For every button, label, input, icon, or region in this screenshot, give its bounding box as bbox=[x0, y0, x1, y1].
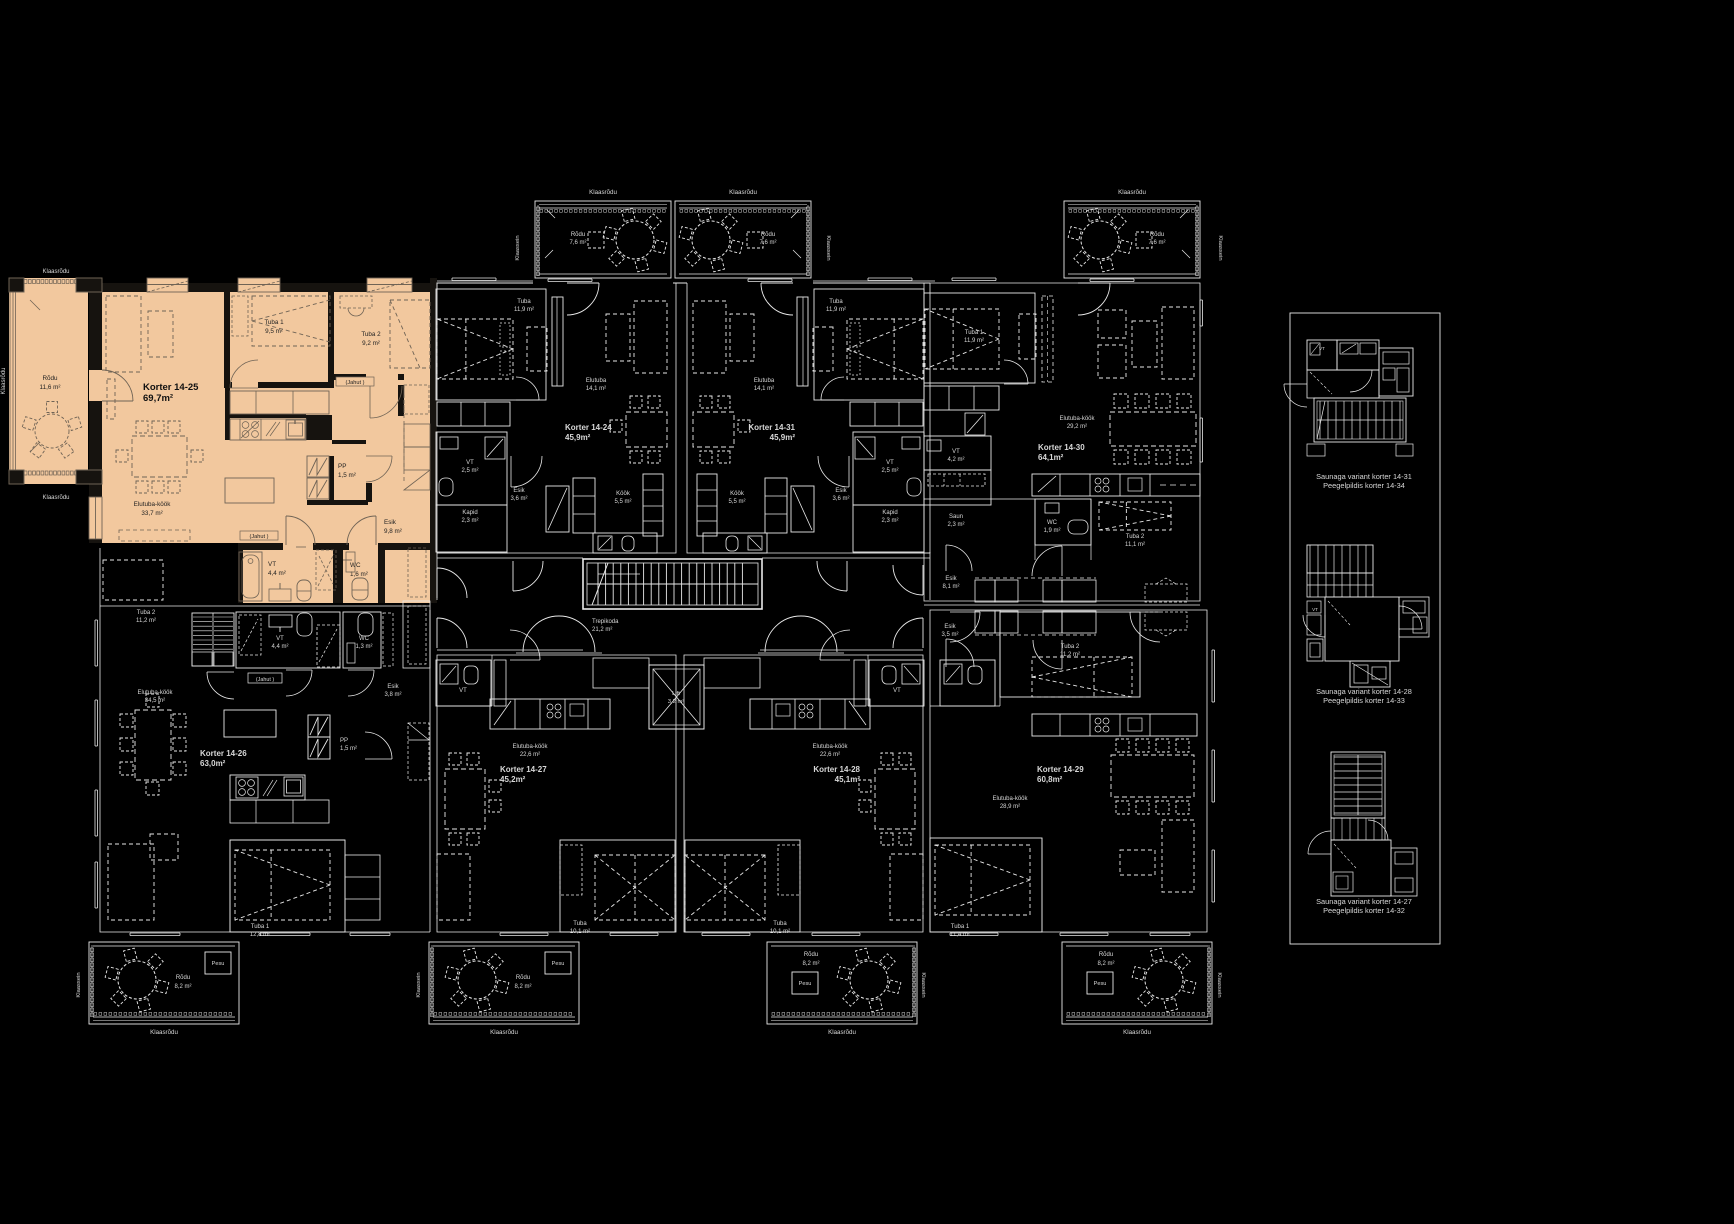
svg-text:21,2 m²: 21,2 m² bbox=[592, 627, 612, 633]
svg-text:Rõdu: Rõdu bbox=[516, 975, 530, 981]
svg-text:Rõdu: Rõdu bbox=[571, 232, 585, 238]
svg-text:Klaassein: Klaassein bbox=[920, 972, 926, 997]
svg-text:Tuba 2: Tuba 2 bbox=[137, 610, 156, 616]
svg-text:(Jahut ): (Jahut ) bbox=[256, 677, 274, 683]
svg-text:Elutuba-köök: Elutuba-köök bbox=[512, 744, 548, 750]
svg-text:4,4 m²: 4,4 m² bbox=[271, 644, 288, 650]
svg-text:VT: VT bbox=[466, 460, 474, 466]
svg-text:11,9 m²: 11,9 m² bbox=[964, 338, 984, 344]
svg-text:45,2m²: 45,2m² bbox=[500, 775, 526, 784]
svg-text:Klaassein: Klaassein bbox=[1216, 972, 1222, 997]
svg-text:1,3 m²: 1,3 m² bbox=[355, 644, 372, 650]
svg-text:Klaasrõdu: Klaasrõdu bbox=[729, 189, 757, 196]
svg-text:8,2 m²: 8,2 m² bbox=[1097, 961, 1114, 967]
svg-text:1,9 m²: 1,9 m² bbox=[1043, 528, 1060, 534]
svg-text:1,5 m²: 1,5 m² bbox=[340, 746, 357, 752]
svg-text:11,2 m²: 11,2 m² bbox=[1060, 652, 1080, 658]
svg-text:Peegelpildis korter 14-34: Peegelpildis korter 14-34 bbox=[1323, 481, 1405, 490]
svg-text:VT: VT bbox=[459, 688, 467, 694]
svg-text:Klaasrõdu: Klaasrõdu bbox=[589, 189, 617, 196]
svg-text:9,2 m²: 9,2 m² bbox=[362, 340, 380, 347]
svg-text:11,9 m²: 11,9 m² bbox=[826, 307, 846, 313]
svg-text:Tuba 1: Tuba 1 bbox=[965, 330, 984, 336]
svg-text:7,6 m²: 7,6 m² bbox=[569, 240, 586, 246]
svg-text:Tuba 1: Tuba 1 bbox=[251, 924, 270, 930]
svg-text:WC: WC bbox=[1047, 520, 1058, 526]
svg-text:Klaasrõdu: Klaasrõdu bbox=[828, 1029, 856, 1036]
svg-text:Korter 14-25: Korter 14-25 bbox=[143, 382, 199, 393]
svg-text:PP: PP bbox=[340, 738, 348, 744]
svg-text:Esik: Esik bbox=[384, 519, 397, 526]
svg-text:Saunaga variant korter 14-28: Saunaga variant korter 14-28 bbox=[1316, 687, 1412, 696]
svg-text:Tuba: Tuba bbox=[573, 921, 587, 927]
svg-text:Kapid: Kapid bbox=[462, 510, 477, 516]
svg-text:34,5 m²: 34,5 m² bbox=[145, 698, 165, 704]
svg-text:Korter 14-31: Korter 14-31 bbox=[748, 423, 795, 432]
svg-text:Rõdu: Rõdu bbox=[42, 375, 58, 382]
svg-text:Elutuba: Elutuba bbox=[586, 378, 607, 384]
svg-text:3,6 m²: 3,6 m² bbox=[832, 496, 849, 502]
svg-text:64,1m²: 64,1m² bbox=[1038, 453, 1064, 462]
svg-text:Kapid: Kapid bbox=[882, 510, 897, 516]
svg-text:WC: WC bbox=[359, 636, 370, 642]
svg-text:Klaassein: Klaassein bbox=[1217, 235, 1223, 260]
svg-text:VT: VT bbox=[893, 688, 901, 694]
svg-text:5,5 m²: 5,5 m² bbox=[728, 499, 745, 505]
svg-text:Pesu: Pesu bbox=[799, 981, 812, 987]
svg-text:28,9 m²: 28,9 m² bbox=[1000, 804, 1020, 810]
svg-text:63,0m²: 63,0m² bbox=[200, 759, 226, 768]
svg-text:Saun: Saun bbox=[949, 514, 963, 520]
svg-text:22,6 m²: 22,6 m² bbox=[820, 752, 840, 758]
svg-text:Korter 14-30: Korter 14-30 bbox=[1038, 443, 1085, 452]
svg-text:11,1 m²: 11,1 m² bbox=[1125, 542, 1145, 548]
svg-text:8,1 m²: 8,1 m² bbox=[942, 584, 959, 590]
svg-text:Tuba 1: Tuba 1 bbox=[951, 924, 970, 930]
svg-text:Saunaga variant korter 14-31: Saunaga variant korter 14-31 bbox=[1316, 472, 1412, 481]
svg-text:Korter 14-26: Korter 14-26 bbox=[200, 749, 247, 758]
svg-text:11,2 m²: 11,2 m² bbox=[136, 618, 156, 624]
svg-text:29,2 m²: 29,2 m² bbox=[1067, 424, 1087, 430]
svg-text:Pesu: Pesu bbox=[212, 961, 225, 967]
svg-text:Tuba 2: Tuba 2 bbox=[361, 331, 381, 338]
svg-text:Rõdu: Rõdu bbox=[1150, 232, 1164, 238]
svg-text:Klaassein: Klaassein bbox=[76, 972, 82, 997]
svg-text:VT: VT bbox=[1312, 607, 1318, 612]
svg-text:WC: WC bbox=[350, 562, 361, 569]
svg-text:8,2 m²: 8,2 m² bbox=[802, 961, 819, 967]
svg-text:3,5 m²: 3,5 m² bbox=[941, 632, 958, 638]
svg-text:45,9m²: 45,9m² bbox=[770, 433, 796, 442]
svg-text:Klaassein: Klaassein bbox=[416, 972, 422, 997]
svg-text:Klaassein: Klaassein bbox=[825, 235, 831, 260]
svg-text:Klaasrõdu: Klaasrõdu bbox=[42, 495, 69, 501]
svg-text:Pesu: Pesu bbox=[1094, 981, 1107, 987]
svg-text:VT: VT bbox=[268, 561, 276, 568]
svg-text:VT: VT bbox=[952, 449, 960, 455]
svg-text:Tuba: Tuba bbox=[517, 299, 531, 305]
svg-text:Saunaga variant korter 14-27: Saunaga variant korter 14-27 bbox=[1316, 897, 1412, 906]
svg-text:Esik: Esik bbox=[387, 684, 399, 690]
svg-text:Klaasrõdu: Klaasrõdu bbox=[42, 269, 69, 275]
svg-text:Elutuba-köök: Elutuba-köök bbox=[137, 690, 173, 696]
svg-text:2,5 m²: 2,5 m² bbox=[881, 468, 898, 474]
svg-text:VT: VT bbox=[276, 636, 284, 642]
svg-text:Korter 14-28: Korter 14-28 bbox=[813, 765, 860, 774]
svg-text:7,6 m²: 7,6 m² bbox=[759, 240, 776, 246]
svg-text:Elutuba-köök: Elutuba-köök bbox=[134, 501, 172, 508]
svg-text:Korter 14-24: Korter 14-24 bbox=[565, 423, 612, 432]
svg-text:(Jahut ): (Jahut ) bbox=[346, 380, 365, 386]
svg-text:Klaasrõdu: Klaasrõdu bbox=[1, 367, 7, 394]
svg-text:45,1m²: 45,1m² bbox=[835, 775, 861, 784]
svg-text:11,6 m²: 11,6 m² bbox=[40, 384, 61, 391]
svg-text:14,1 m²: 14,1 m² bbox=[586, 386, 606, 392]
svg-text:Esik: Esik bbox=[944, 624, 956, 630]
svg-text:45,9m²: 45,9m² bbox=[565, 433, 591, 442]
svg-text:2,3 m²: 2,3 m² bbox=[461, 518, 478, 524]
svg-text:Tuba 2: Tuba 2 bbox=[1126, 534, 1145, 540]
svg-text:Elutuba-köök: Elutuba-köök bbox=[1059, 416, 1095, 422]
svg-text:Elutuba-köök: Elutuba-köök bbox=[992, 796, 1028, 802]
svg-text:2,3 m²: 2,3 m² bbox=[947, 522, 964, 528]
svg-text:5,5 m²: 5,5 m² bbox=[614, 499, 631, 505]
svg-text:Tuba 2: Tuba 2 bbox=[1061, 644, 1080, 650]
svg-text:Klaasrõdu: Klaasrõdu bbox=[490, 1029, 518, 1036]
svg-text:Peegelpildis korter 14-33: Peegelpildis korter 14-33 bbox=[1323, 696, 1405, 705]
svg-text:4,2 m²: 4,2 m² bbox=[947, 457, 964, 463]
svg-text:Klaasrõdu: Klaasrõdu bbox=[150, 1029, 178, 1036]
svg-text:Rõdu: Rõdu bbox=[1099, 952, 1113, 958]
svg-text:Esik: Esik bbox=[835, 488, 847, 494]
svg-text:11,9 m²: 11,9 m² bbox=[514, 307, 534, 313]
svg-text:Elutuba-köök: Elutuba-köök bbox=[812, 744, 848, 750]
svg-text:60,8m²: 60,8m² bbox=[1037, 775, 1063, 784]
svg-text:PP: PP bbox=[338, 463, 346, 470]
svg-text:69,7m²: 69,7m² bbox=[143, 393, 173, 404]
svg-text:Köök: Köök bbox=[730, 491, 745, 497]
svg-text:Rõdu: Rõdu bbox=[804, 952, 818, 958]
svg-text:Rõdu: Rõdu bbox=[176, 975, 190, 981]
svg-text:33,7 m²: 33,7 m² bbox=[141, 510, 162, 517]
svg-text:7,6 m²: 7,6 m² bbox=[1148, 240, 1165, 246]
svg-text:Klaasrõdu: Klaasrõdu bbox=[1118, 189, 1146, 196]
svg-text:Tuba: Tuba bbox=[829, 299, 843, 305]
svg-text:VT: VT bbox=[886, 460, 894, 466]
svg-text:2,5 m²: 2,5 m² bbox=[461, 468, 478, 474]
svg-text:Korter 14-27: Korter 14-27 bbox=[500, 765, 547, 774]
svg-text:Pesu: Pesu bbox=[552, 961, 565, 967]
svg-text:Trepikoda: Trepikoda bbox=[592, 619, 619, 625]
svg-text:(Jahut ): (Jahut ) bbox=[250, 534, 269, 540]
svg-text:3,6 m²: 3,6 m² bbox=[510, 496, 527, 502]
svg-text:9,8 m²: 9,8 m² bbox=[384, 528, 402, 535]
svg-text:Köök: Köök bbox=[616, 491, 631, 497]
svg-text:2,3 m²: 2,3 m² bbox=[881, 518, 898, 524]
svg-text:8,2 m²: 8,2 m² bbox=[514, 984, 531, 990]
svg-text:VT: VT bbox=[1319, 346, 1325, 351]
svg-text:Korter 14-29: Korter 14-29 bbox=[1037, 765, 1084, 774]
svg-text:14,1 m²: 14,1 m² bbox=[754, 386, 774, 392]
svg-text:Tuba: Tuba bbox=[773, 921, 787, 927]
svg-text:Esik: Esik bbox=[513, 488, 525, 494]
svg-text:8,2 m²: 8,2 m² bbox=[174, 984, 191, 990]
svg-text:4,4 m²: 4,4 m² bbox=[268, 570, 286, 577]
svg-text:Elutuba: Elutuba bbox=[754, 378, 775, 384]
svg-text:Peegelpildis korter 14-32: Peegelpildis korter 14-32 bbox=[1323, 906, 1405, 915]
svg-text:Esik: Esik bbox=[945, 576, 957, 582]
svg-text:3,8 m²: 3,8 m² bbox=[384, 692, 401, 698]
svg-text:Rõdu: Rõdu bbox=[761, 232, 775, 238]
svg-text:22,6 m²: 22,6 m² bbox=[520, 752, 540, 758]
svg-text:1,5 m²: 1,5 m² bbox=[338, 472, 356, 479]
svg-text:Klaasrõdu: Klaasrõdu bbox=[1123, 1029, 1151, 1036]
svg-text:Klaassein: Klaassein bbox=[515, 235, 521, 260]
